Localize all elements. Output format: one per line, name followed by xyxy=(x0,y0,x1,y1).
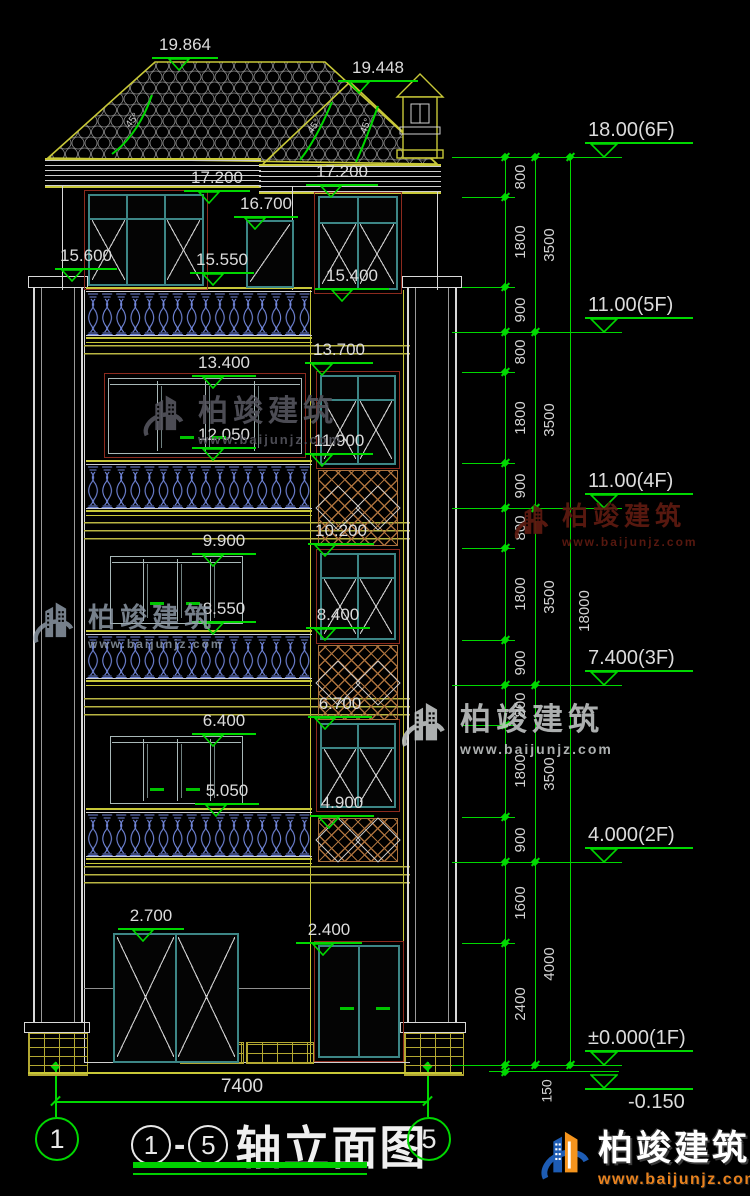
window-opening-mark xyxy=(167,220,200,280)
dim-label: 18000 xyxy=(577,590,593,632)
pier-brick-base xyxy=(28,1033,88,1076)
plinth-brick-strip xyxy=(246,1042,314,1064)
elevation-mark-label: 15.550 xyxy=(190,251,254,269)
pilaster-shaft xyxy=(407,288,457,1022)
balcony-rail-line xyxy=(86,856,312,857)
sliding-door-divider xyxy=(143,739,144,801)
level-label: 11.00(4F) xyxy=(588,471,700,492)
level-label: ±0.000(1F) xyxy=(588,1028,700,1049)
door-handle-mark xyxy=(150,788,164,791)
elevation-mark-triangle xyxy=(314,628,336,641)
watermark-url: www.baijunjz.com xyxy=(88,637,224,651)
elevation-mark-triangle xyxy=(314,717,336,730)
balcony-rail-top xyxy=(86,808,312,810)
elevation-drawing-canvas: 45° 45° 45° 1 - 5 轴立面图 1 5 7400 xyxy=(0,0,750,1196)
dim-line-vertical xyxy=(535,157,536,1065)
title-axis-end-bubble: 5 xyxy=(188,1125,228,1165)
window-opening-mark xyxy=(178,937,235,1057)
level-marker-triangle xyxy=(590,848,618,863)
watermark-url: www.baijunjz.com xyxy=(460,741,613,757)
watermark-name: 柏竣建筑 xyxy=(460,694,613,739)
elevation-mark-label: 4.900 xyxy=(310,794,374,812)
balcony-rail-bottom xyxy=(86,337,312,339)
dim-extension-line xyxy=(452,157,622,158)
dim-extension-line xyxy=(462,287,515,288)
elevation-mark-label: 5.050 xyxy=(195,782,259,800)
elevation-mark-triangle xyxy=(318,816,340,829)
dim-label: 1800 xyxy=(513,401,529,434)
dim-label: 1600 xyxy=(513,886,529,919)
level-marker-triangle xyxy=(590,1074,618,1089)
floor-slab-band xyxy=(84,866,410,890)
level-label: 11.00(5F) xyxy=(588,295,700,316)
level-marker-triangle xyxy=(590,318,618,333)
elevation-mark-label: 13.700 xyxy=(305,341,373,359)
balcony-rail-line xyxy=(86,678,312,679)
elevation-mark-label: 19.864 xyxy=(152,36,218,54)
dim-extension-line xyxy=(452,332,622,333)
elevation-mark-label: 6.700 xyxy=(308,695,372,713)
elevation-mark-label: 15.600 xyxy=(55,247,117,265)
elevation-mark-triangle xyxy=(202,734,224,747)
window-opening-mark xyxy=(250,224,290,282)
window-mullion xyxy=(126,196,128,284)
watermark-name: 柏竣建筑 xyxy=(88,596,224,635)
elevation-mark-label: 13.400 xyxy=(192,354,256,372)
width-dim-line xyxy=(55,1101,427,1103)
watermark: 柏竣建筑 www.baijunjz.com xyxy=(138,386,342,447)
title-underline-thin xyxy=(133,1173,367,1175)
balcony-balusters xyxy=(86,814,312,856)
elevation-mark-triangle xyxy=(311,363,333,376)
watermark-url: www.baijunjz.com xyxy=(198,432,342,447)
watermark-name: 柏竣建筑 xyxy=(198,386,342,430)
title-dash: - xyxy=(174,1126,185,1165)
watermark-name: 柏竣建筑 xyxy=(562,496,698,533)
dim-label: 3500 xyxy=(542,228,558,261)
level-label: 7.400(3F) xyxy=(588,648,700,669)
watermark: 柏竣建筑 www.baijunjz.com xyxy=(28,596,224,651)
brand-url: www.baijunjz.com xyxy=(598,1171,750,1189)
elevation-mark-triangle xyxy=(331,289,353,302)
dim-label: 900 xyxy=(513,827,529,852)
window-opening-mark xyxy=(360,401,392,459)
elevation-mark-label: 10.200 xyxy=(308,522,374,540)
balcony-rail-bottom xyxy=(86,510,312,512)
sliding-door-divider xyxy=(147,744,148,798)
elevation-mark-line xyxy=(306,184,378,186)
door-handle-mark xyxy=(376,1007,390,1010)
level-label: -0.150 xyxy=(628,1092,708,1113)
window-mullion xyxy=(358,947,360,1056)
elevation-mark-triangle xyxy=(244,217,266,230)
dim-extension-line xyxy=(452,1065,622,1066)
balcony-rail-line xyxy=(86,508,312,509)
balcony-rail-line xyxy=(86,291,312,292)
watermark-logo-icon xyxy=(28,596,80,651)
baluster-row xyxy=(86,293,312,335)
level-marker-triangle xyxy=(590,671,618,686)
drawing-title: 1 - 5 轴立面图 xyxy=(130,1112,427,1178)
baluster-row xyxy=(86,466,312,508)
balcony-rail-bottom xyxy=(86,863,312,864)
elevation-mark-label: 17.200 xyxy=(184,169,250,187)
chimney xyxy=(397,74,443,158)
dim-label: 3500 xyxy=(542,580,558,613)
title-text: 轴立面图 xyxy=(235,1112,427,1178)
pilaster-shaft xyxy=(33,288,83,1022)
elevation-mark-triangle xyxy=(311,454,333,467)
baluster-row xyxy=(86,814,312,856)
balcony-rail-bottom xyxy=(86,685,312,686)
balcony-rail-bottom xyxy=(86,680,312,682)
watermark-logo-icon xyxy=(510,499,554,545)
dim-extension-line xyxy=(462,463,515,464)
level-label: 4.000(2F) xyxy=(588,825,700,846)
elevation-mark-triangle xyxy=(168,58,190,71)
balcony-rail-bottom xyxy=(86,515,312,516)
elevation-mark-triangle xyxy=(202,448,224,461)
elevation-mark-triangle xyxy=(312,943,334,956)
window-mullion xyxy=(164,196,166,284)
watermark-logo-icon xyxy=(138,389,190,444)
elevation-mark-triangle xyxy=(205,804,227,817)
balcony-rail-line xyxy=(86,335,312,336)
dim-label: 4000 xyxy=(542,947,558,980)
elevation-mark-triangle xyxy=(132,929,154,942)
elevation-mark-label: 19.448 xyxy=(338,59,418,77)
elevation-mark-label: 2.400 xyxy=(296,921,362,939)
dim-label: 150 xyxy=(540,1079,555,1102)
elevation-mark-label: 16.700 xyxy=(234,195,298,213)
elevation-mark-label: 15.400 xyxy=(315,267,389,285)
watermark-url: www.baijunjz.com xyxy=(562,535,698,549)
dim-extension-line xyxy=(462,817,515,818)
dim-label: 900 xyxy=(513,473,529,498)
window-mullion xyxy=(357,377,359,463)
dim-label: 1800 xyxy=(513,577,529,610)
door-handle-mark xyxy=(340,1007,354,1010)
dim-label: 3500 xyxy=(542,757,558,790)
ground-line xyxy=(28,1072,462,1074)
dim-extension-line xyxy=(452,862,622,863)
dim-label: 3500 xyxy=(542,403,558,436)
pier-cap xyxy=(24,1022,90,1033)
pier-brick-base xyxy=(404,1033,464,1076)
elevation-mark-label: 6.400 xyxy=(192,712,256,730)
dim-label: 1800 xyxy=(513,754,529,787)
watermark: 柏竣建筑 www.baijunjz.com xyxy=(396,694,613,757)
dim-line-vertical xyxy=(505,157,506,1072)
title-underline-thick xyxy=(133,1162,367,1168)
pilaster-capital xyxy=(402,276,462,288)
dim-extension-line xyxy=(462,943,515,944)
balcony-rail-top xyxy=(86,460,312,462)
balcony-balusters xyxy=(86,466,312,508)
dim-extension-line xyxy=(452,685,622,686)
elevation-mark-triangle xyxy=(202,273,224,286)
dim-extension-line xyxy=(462,197,515,198)
grid-bubble-5: 5 xyxy=(407,1117,451,1161)
window-opening-mark xyxy=(117,937,174,1057)
dim-extension-line xyxy=(462,548,515,549)
elevation-mark-triangle xyxy=(202,554,224,567)
dim-line-vertical xyxy=(570,157,571,1065)
watermark: 柏竣建筑 www.baijunjz.com xyxy=(510,496,698,549)
dim-label: 2400 xyxy=(513,987,529,1020)
elevation-mark-triangle xyxy=(198,191,220,204)
balcony-rail-line xyxy=(86,812,312,813)
brand-name: 柏竣建筑 xyxy=(598,1120,750,1171)
dim-extension-line xyxy=(489,1071,619,1072)
dim-label: 900 xyxy=(513,650,529,675)
dim-label: 900 xyxy=(513,297,529,322)
elevation-mark-triangle xyxy=(61,269,83,282)
elevation-mark-triangle xyxy=(320,185,342,198)
balcony-rail-bottom xyxy=(86,342,312,343)
window-mullion xyxy=(357,555,359,638)
balcony-balusters xyxy=(86,293,312,335)
brand-block: 柏竣建筑 www.baijunjz.com xyxy=(534,1120,750,1189)
elevation-mark-triangle xyxy=(314,544,336,557)
dim-label: 800 xyxy=(513,164,529,189)
dim-extension-line xyxy=(462,640,515,641)
dim-label: 800 xyxy=(513,339,529,364)
brand-logo-icon xyxy=(534,1123,592,1187)
balcony-rail-line xyxy=(86,464,312,465)
title-axis-start-bubble: 1 xyxy=(131,1125,171,1165)
sliding-door-divider xyxy=(177,739,178,801)
window-mullion xyxy=(175,935,177,1061)
elevation-mark-label: 9.900 xyxy=(192,532,256,550)
level-label: 18.00(6F) xyxy=(588,120,700,141)
elevation-mark-label: 2.700 xyxy=(118,907,184,925)
level-marker-triangle xyxy=(590,143,618,158)
watermark-logo-icon xyxy=(396,696,452,755)
main-hip-roof xyxy=(48,62,437,164)
level-marker-triangle xyxy=(590,1051,618,1066)
sliding-door-divider xyxy=(181,744,182,798)
elevation-mark-label: 17.200 xyxy=(306,163,378,181)
wall-edge-line xyxy=(84,290,85,1062)
pier-cap xyxy=(400,1022,466,1033)
balcony-rail-bottom xyxy=(86,858,312,860)
width-dim-label: 7400 xyxy=(210,1077,274,1097)
grid-bubble-1: 1 xyxy=(35,1117,79,1161)
elevation-mark-label: 8.400 xyxy=(306,606,370,624)
dim-label: 1800 xyxy=(513,225,529,258)
dim-extension-line xyxy=(462,372,515,373)
elevation-mark-triangle xyxy=(348,81,370,94)
